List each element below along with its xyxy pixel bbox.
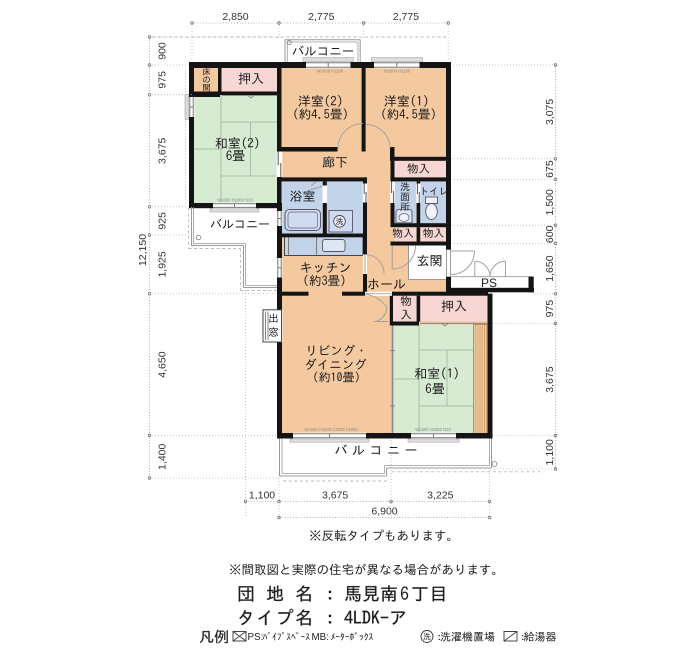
svg-text:3,225: 3,225 xyxy=(427,490,453,502)
svg-text:1,500: 1,500 xyxy=(544,189,556,215)
svg-text:W1600 H1800 C2036 T1800: W1600 H1800 C2036 T1800 xyxy=(304,427,358,432)
svg-text:MB:: MB: xyxy=(312,632,329,643)
svg-text:975: 975 xyxy=(544,300,556,318)
svg-text:600: 600 xyxy=(544,225,556,243)
svg-text:2,850: 2,850 xyxy=(222,11,248,23)
svg-text:W1600 H1800 N20: W1600 H1800 N20 xyxy=(217,197,253,202)
svg-text:1,100: 1,100 xyxy=(544,439,556,465)
svg-text:W1600 H1100: W1600 H1100 xyxy=(317,69,344,74)
svg-text:W1600 H1100: W1600 H1100 xyxy=(384,69,411,74)
svg-text:1,400: 1,400 xyxy=(157,444,169,470)
svg-text:3,675: 3,675 xyxy=(157,138,169,164)
svg-text:975: 975 xyxy=(157,71,169,89)
svg-text:PS:: PS: xyxy=(248,632,264,643)
svg-text:3,675: 3,675 xyxy=(544,366,556,392)
svg-text:925: 925 xyxy=(157,212,169,230)
svg-text:3,075: 3,075 xyxy=(544,99,556,125)
svg-text:6,900: 6,900 xyxy=(371,506,397,518)
svg-text:1,650: 1,650 xyxy=(544,255,556,281)
svg-text:12,150: 12,150 xyxy=(137,234,149,266)
svg-text:4,650: 4,650 xyxy=(157,351,169,377)
svg-text:675: 675 xyxy=(544,160,556,178)
svg-text:1,100: 1,100 xyxy=(249,490,275,502)
svg-text:2,775: 2,775 xyxy=(308,11,334,23)
svg-text:3,675: 3,675 xyxy=(322,490,348,502)
svg-text:900: 900 xyxy=(157,42,169,60)
svg-text:2,775: 2,775 xyxy=(393,11,419,23)
svg-text:PS: PS xyxy=(481,276,497,290)
svg-text:W1600 H1800 N20: W1600 H1800 N20 xyxy=(415,427,451,432)
svg-text:1,925: 1,925 xyxy=(157,251,169,277)
